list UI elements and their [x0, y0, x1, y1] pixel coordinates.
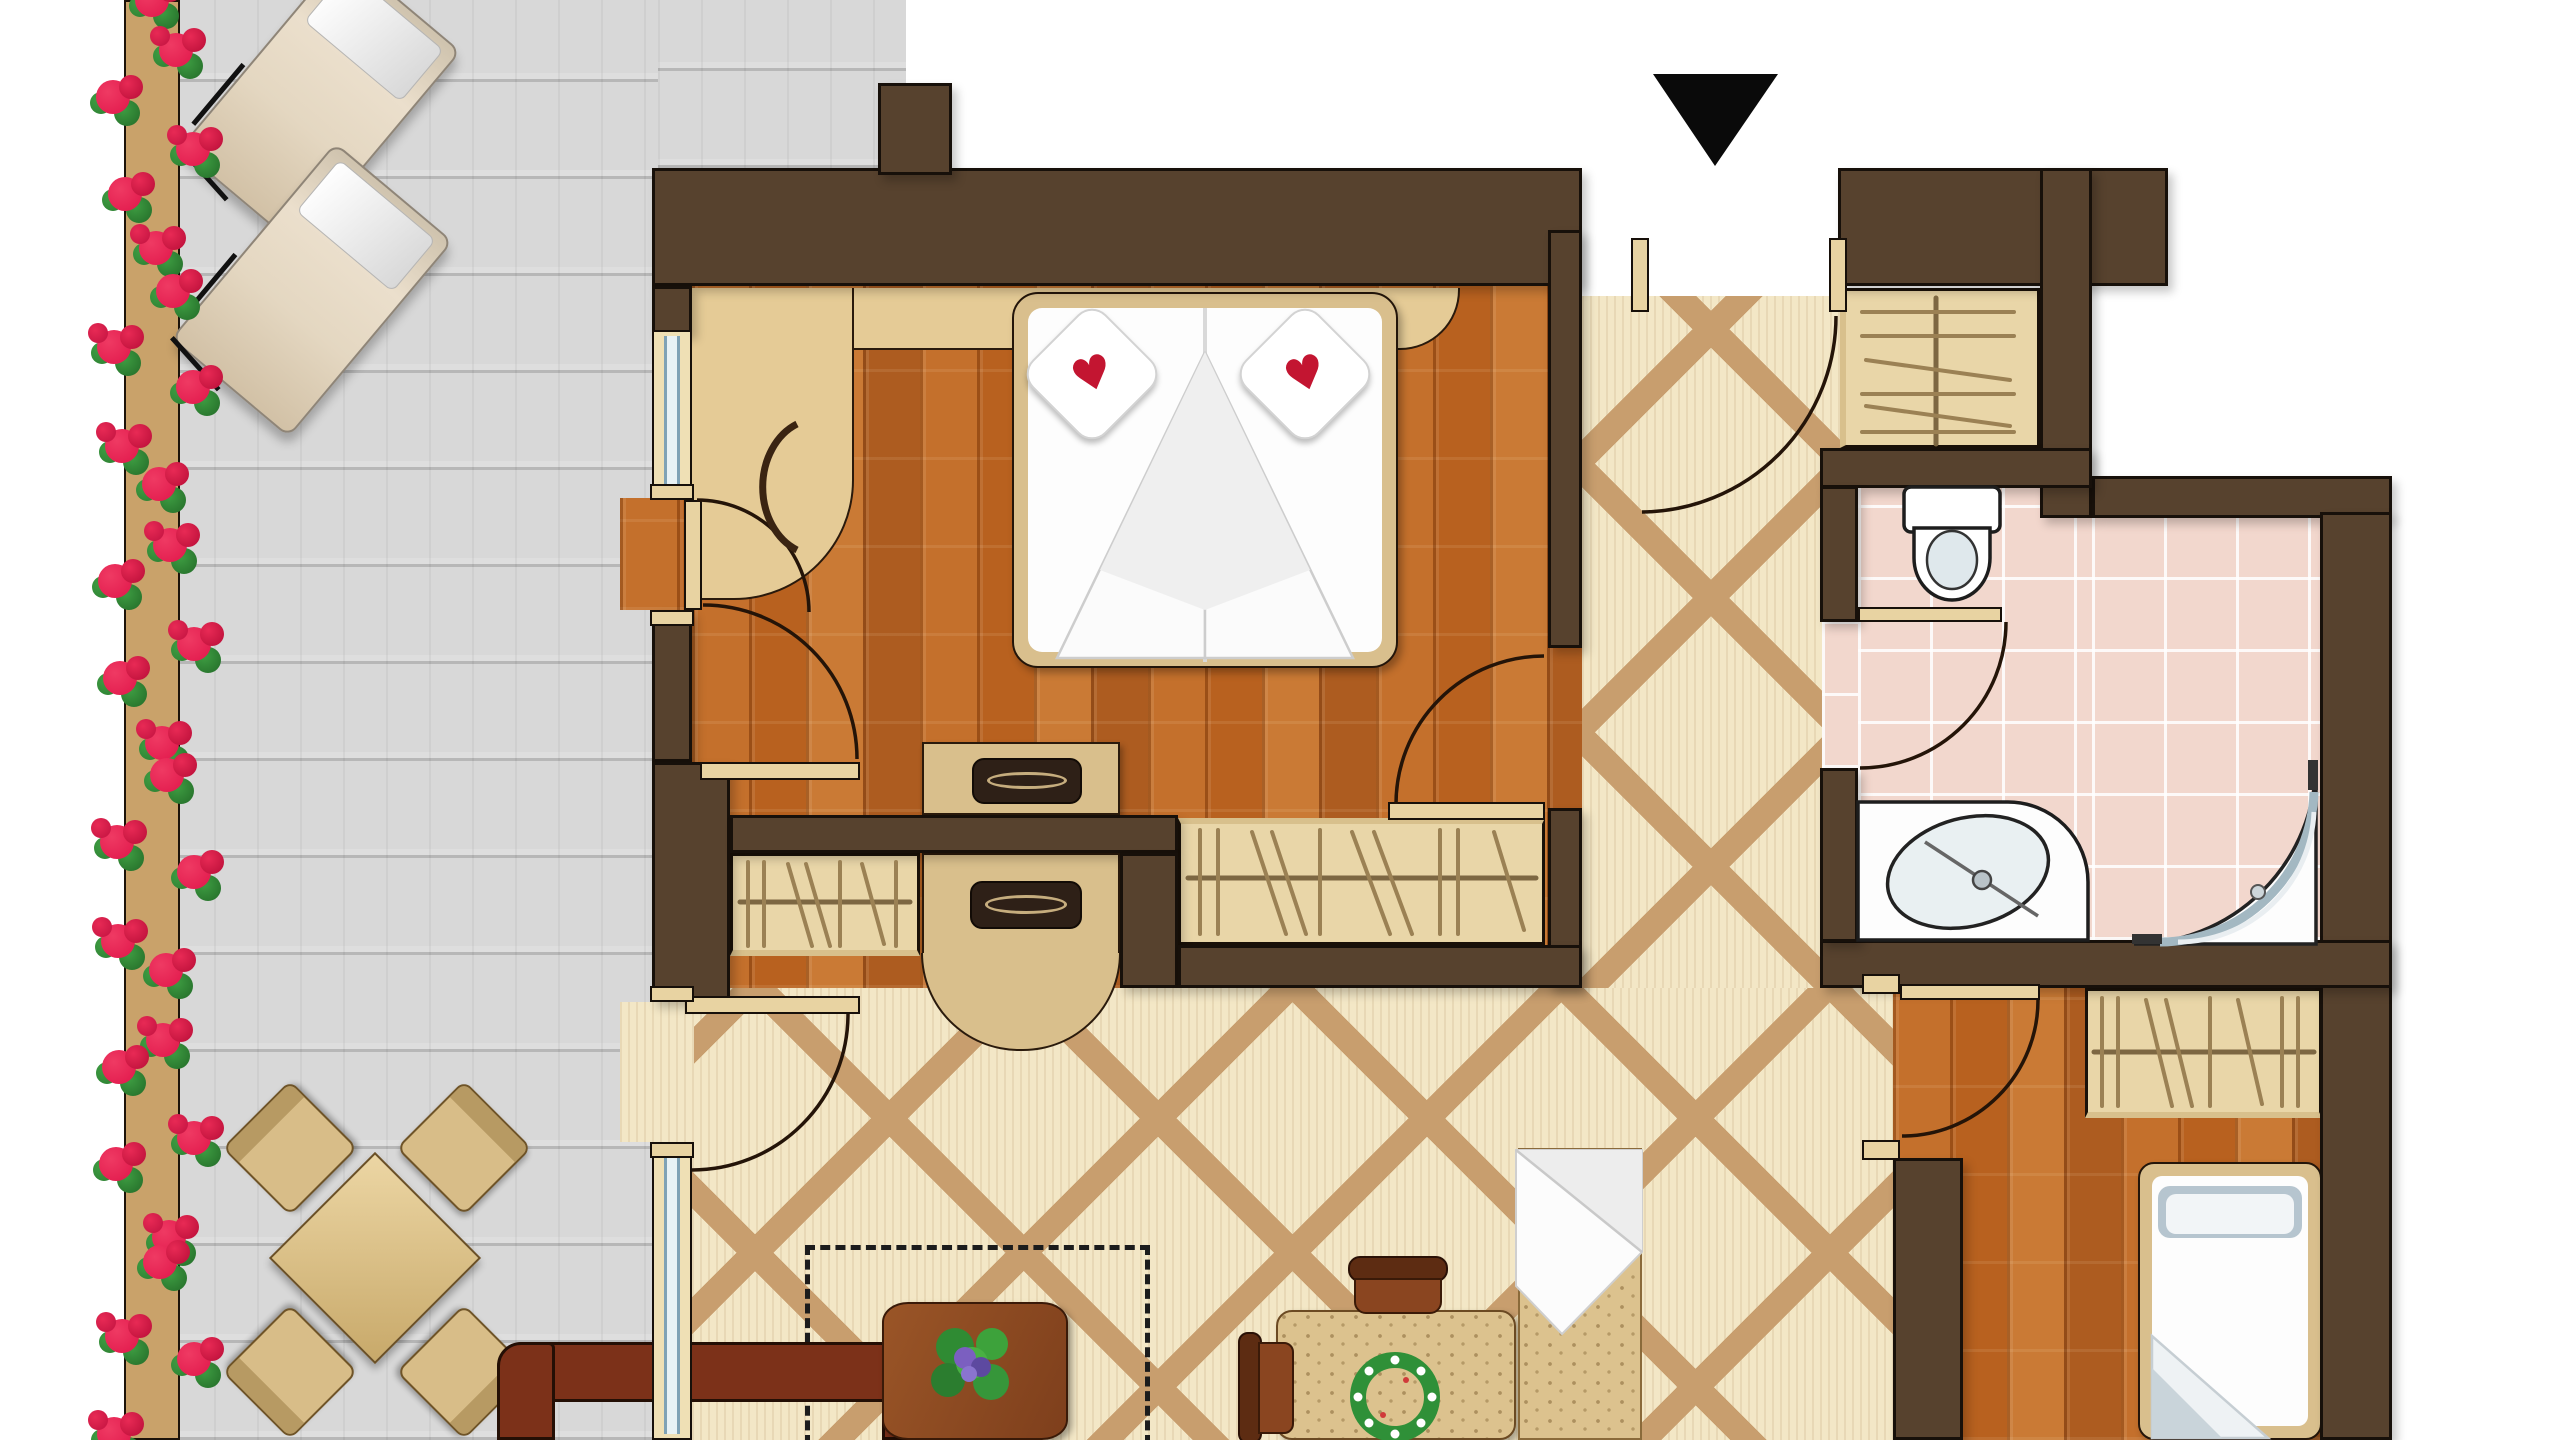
flower-cluster	[166, 1240, 190, 1264]
washbasin-icon	[1858, 799, 2088, 946]
flower-cluster	[150, 26, 170, 46]
flower-cluster	[143, 1213, 163, 1233]
flower-cluster	[92, 917, 112, 937]
flower-cluster	[200, 1337, 224, 1361]
flower-cluster	[175, 1215, 199, 1239]
duvet-fold	[1057, 308, 1353, 662]
flower-cluster	[179, 269, 203, 293]
blanket-fold	[2152, 1336, 2268, 1438]
floor-plan: ♥ ♥	[0, 0, 2560, 1440]
flower-cluster	[182, 28, 206, 52]
desk-chair	[763, 424, 797, 550]
entrance-door-arc	[1642, 316, 1836, 512]
bedroom-door-arc	[1396, 656, 1544, 804]
toilet-icon	[1904, 487, 2000, 600]
bedroom-living-door-arc	[703, 605, 857, 759]
flower-cluster	[88, 323, 108, 343]
wreath-icon	[1354, 1356, 1437, 1439]
flower-cluster	[168, 620, 188, 640]
box-blanket	[1516, 1150, 1642, 1334]
entrance-arrow-icon	[1653, 74, 1778, 166]
plant-icon	[931, 1328, 1009, 1400]
living-balcony-door-arc	[692, 1014, 848, 1170]
flower-cluster	[128, 1314, 152, 1338]
vector-overlay	[0, 0, 2560, 1440]
flower-cluster	[124, 919, 148, 943]
flower-cluster	[130, 224, 150, 244]
flower-cluster	[162, 226, 186, 250]
flower-cluster	[131, 172, 155, 196]
bedroom-balcony-door-arc	[697, 500, 809, 612]
flower-cluster	[120, 325, 144, 349]
flower-cluster	[199, 127, 223, 151]
flower-cluster	[167, 125, 187, 145]
flower-cluster	[119, 75, 143, 99]
flower-cluster	[200, 622, 224, 646]
flower-cluster	[96, 1312, 116, 1332]
bathroom-door-arc	[1860, 622, 2006, 768]
shower-icon	[2132, 760, 2318, 944]
second-room-door-arc	[1902, 1000, 2038, 1136]
flower-cluster	[172, 948, 196, 972]
hangers	[748, 312, 2298, 1106]
flower-cluster	[173, 753, 197, 777]
